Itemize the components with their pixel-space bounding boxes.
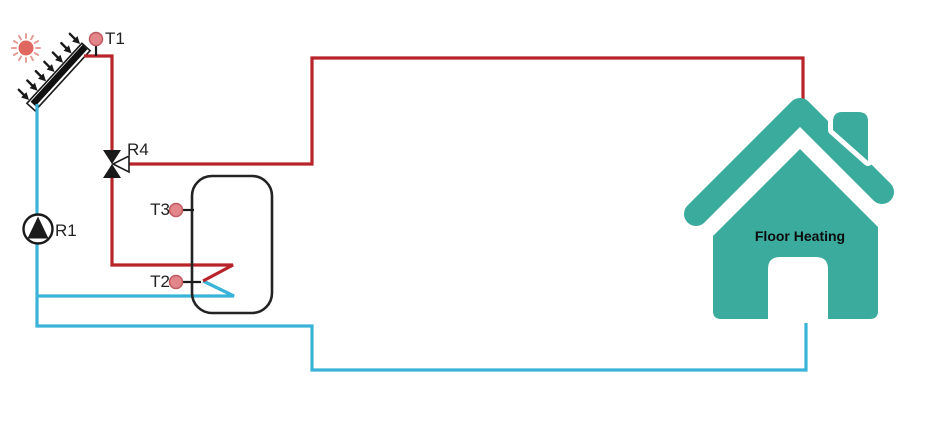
sun-icon (12, 34, 40, 62)
t2-sensor-dot-icon (170, 276, 183, 289)
floor-heating-label: Floor Heating (741, 229, 859, 243)
valve-to-house-pipe (127, 58, 803, 164)
t1-sensor-label: T1 (105, 30, 125, 47)
r1-pump-label: R1 (55, 222, 77, 239)
collector-to-valve-pipe (84, 56, 112, 151)
solar-heating-diagram: T1 R4 R1 T3 T2 Floor Heating (0, 0, 929, 421)
storage-tank-body (192, 176, 272, 313)
cold-return-pipe (37, 104, 806, 370)
t2-sensor-label: T2 (143, 273, 170, 290)
t3-sensor-dot-icon (170, 204, 183, 217)
diagram-canvas (0, 0, 929, 421)
t3-sensor-label: T3 (143, 201, 170, 218)
pump-icon (24, 215, 53, 244)
t1-sensor-dot-icon (90, 33, 103, 46)
sensors (90, 33, 202, 289)
r4-valve-label: R4 (127, 141, 149, 158)
three-way-valve-icon (103, 150, 129, 178)
house-icon (696, 110, 882, 319)
cold-pipes (37, 104, 806, 370)
